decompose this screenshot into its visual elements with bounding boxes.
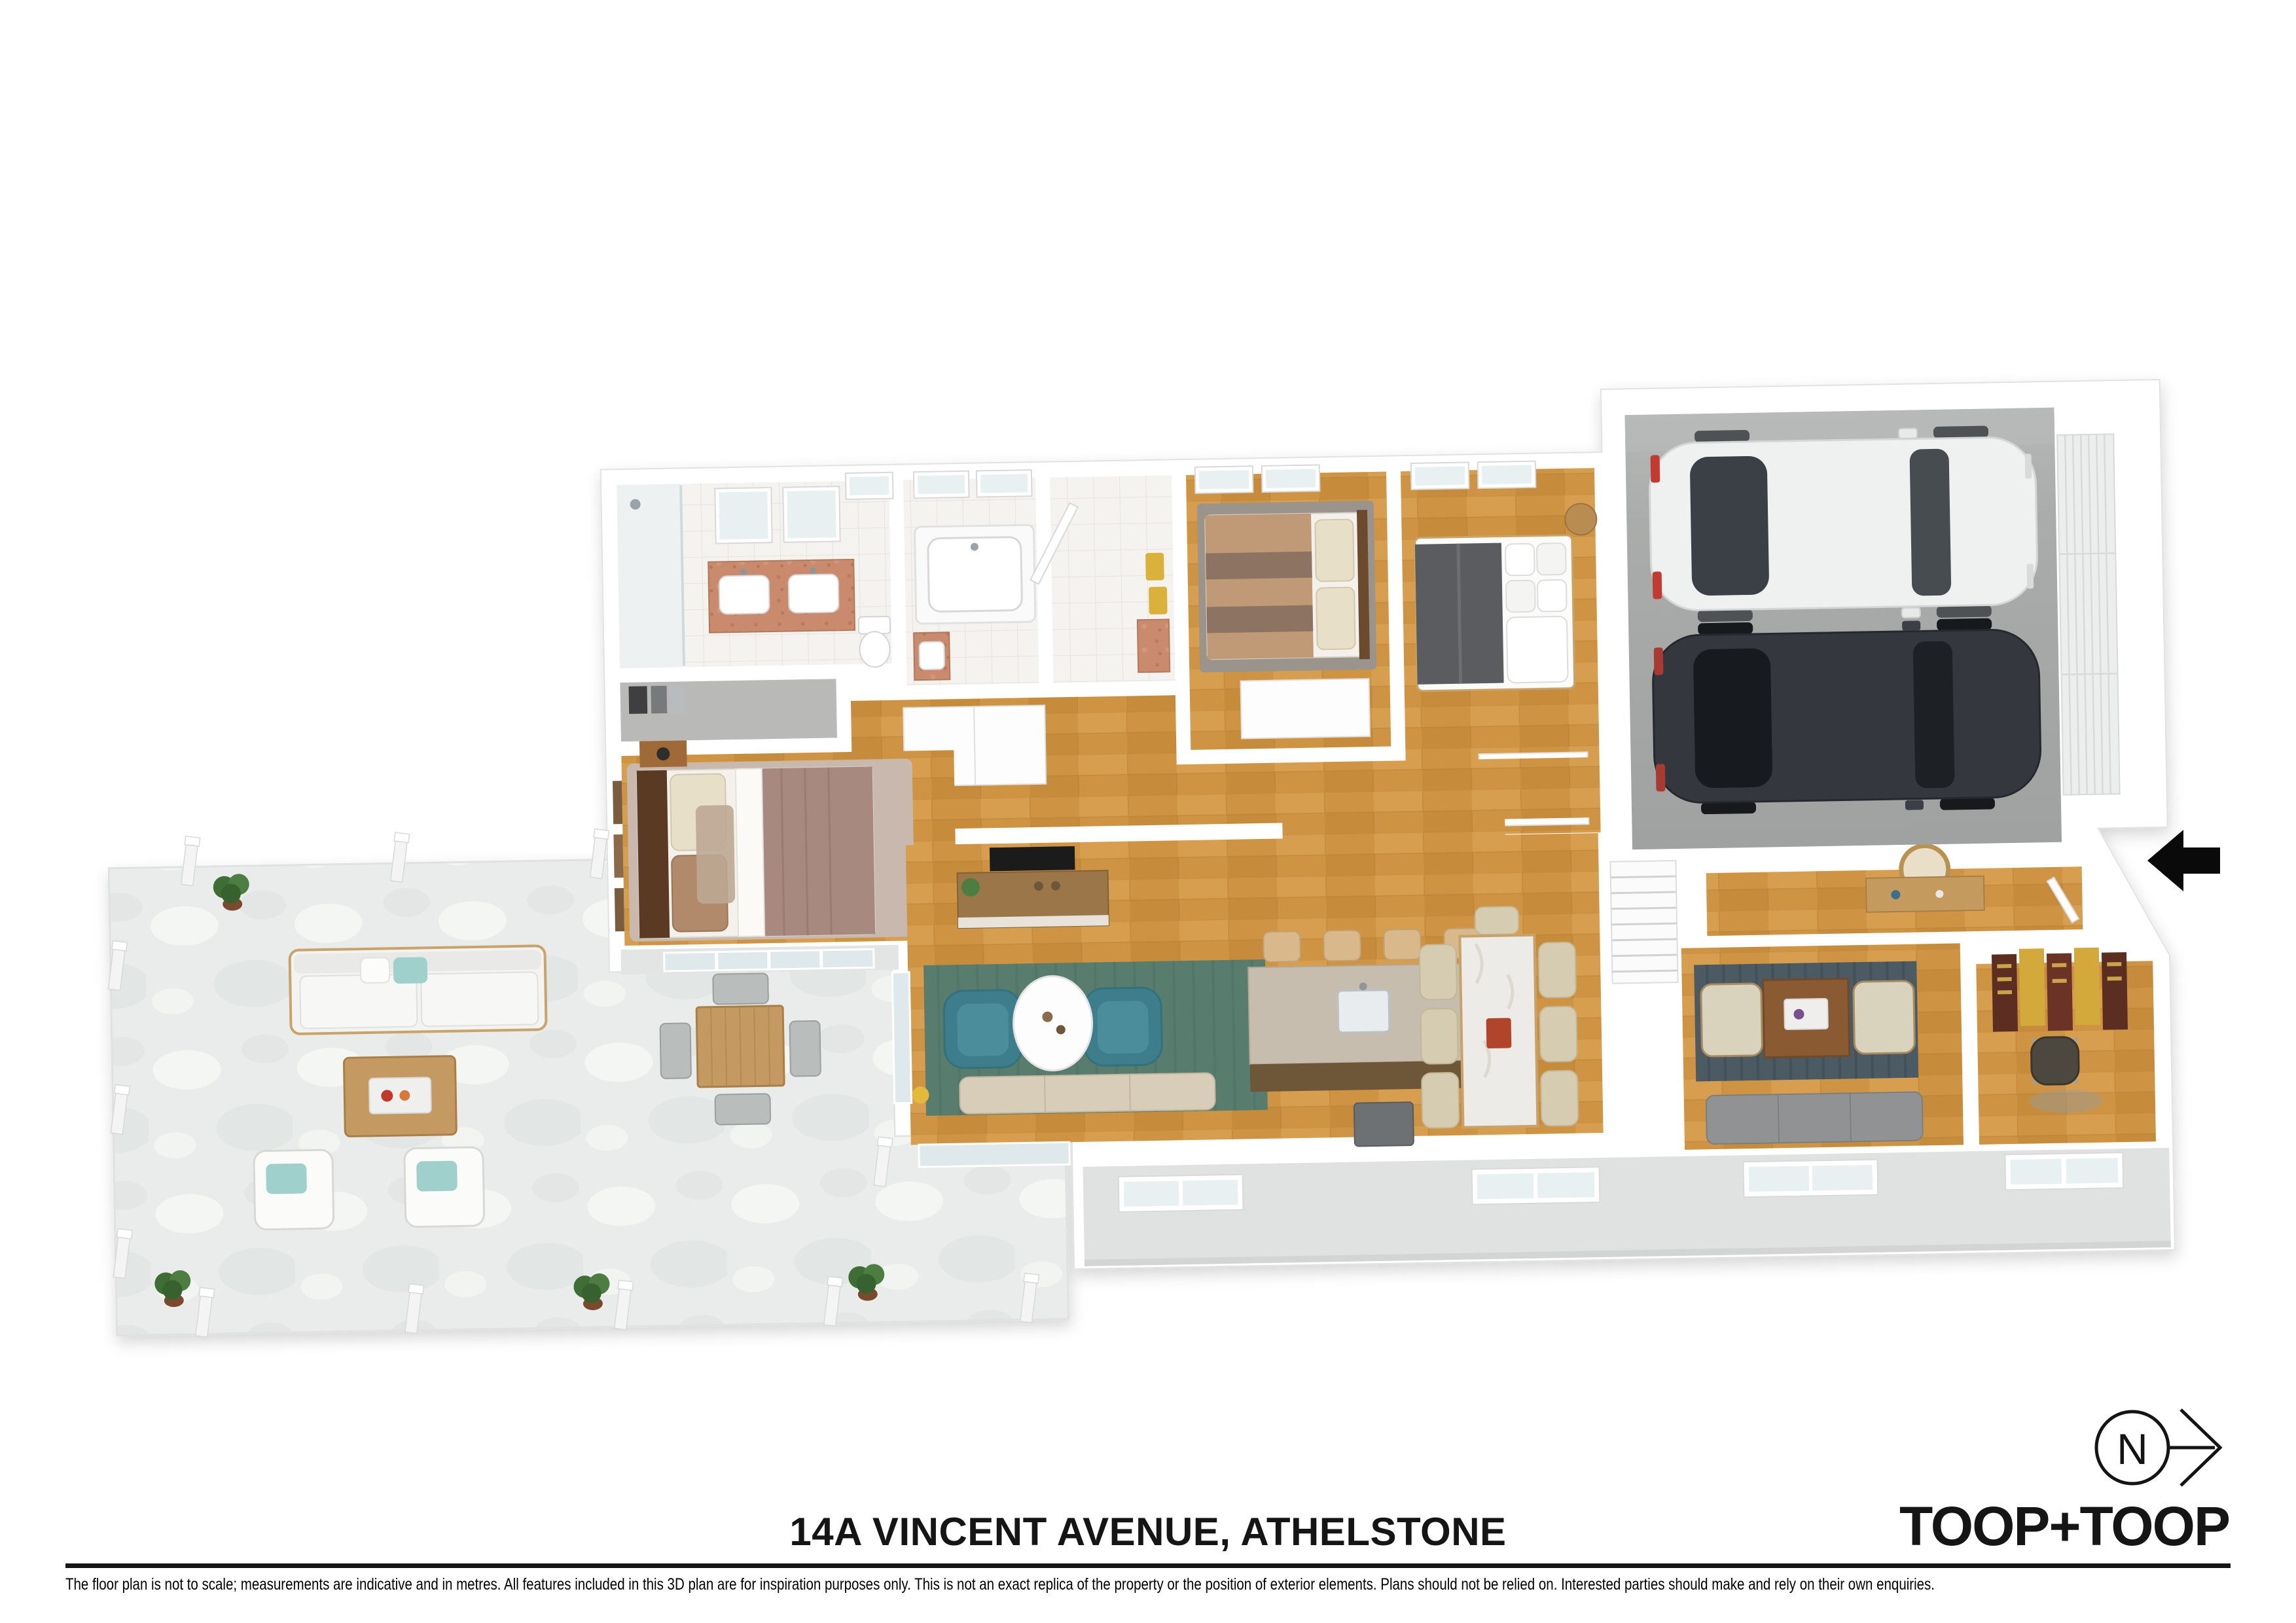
sofa bbox=[960, 1073, 1215, 1114]
towel bbox=[1149, 586, 1168, 614]
front-window bbox=[2005, 1152, 2123, 1190]
armchair bbox=[1854, 981, 1915, 1054]
car-white bbox=[1649, 425, 2038, 622]
bedroom-2 bbox=[1186, 464, 1391, 750]
sofa bbox=[1706, 1092, 1923, 1144]
bookshelves bbox=[1992, 947, 2128, 1032]
bed-2 bbox=[1205, 510, 1370, 662]
study bbox=[1976, 946, 2156, 1145]
dining-chair bbox=[1541, 1071, 1578, 1126]
ensuite-toilet bbox=[859, 616, 891, 668]
front-window bbox=[1119, 1175, 1244, 1212]
bar-stool bbox=[1323, 930, 1361, 961]
entry-arrow-icon bbox=[2147, 830, 2220, 891]
centerpiece bbox=[1486, 1018, 1512, 1048]
robe bbox=[1241, 679, 1371, 738]
window bbox=[846, 473, 893, 499]
patio-slider bbox=[919, 1142, 1070, 1167]
bar-stool bbox=[1263, 931, 1300, 962]
compass-north-label: N bbox=[2117, 1425, 2148, 1473]
tv-icon bbox=[990, 846, 1075, 871]
master-bedroom bbox=[612, 736, 957, 946]
open-plan-living bbox=[890, 833, 1604, 1168]
bed-3 bbox=[1415, 535, 1575, 691]
bathroom-vanity bbox=[914, 632, 950, 680]
dining-chair bbox=[1422, 1073, 1459, 1128]
bathroom bbox=[903, 470, 1039, 685]
stairs bbox=[1610, 861, 1677, 984]
console-table bbox=[1866, 876, 1984, 912]
dining-chair bbox=[1539, 942, 1576, 998]
dining-chair bbox=[1539, 1007, 1577, 1062]
north-compass-icon bbox=[2096, 1410, 2220, 1486]
plan bbox=[97, 380, 2176, 1339]
floor-plan-render: N bbox=[0, 0, 2296, 1623]
dining-chair bbox=[1420, 1008, 1458, 1064]
dining-chair bbox=[1420, 944, 1457, 1000]
dining-chair bbox=[1475, 906, 1519, 935]
hanging-clothes bbox=[629, 686, 648, 713]
hanging-clothes bbox=[651, 686, 667, 713]
wc-vanity bbox=[1138, 619, 1170, 672]
footer-divider bbox=[65, 1563, 2231, 1568]
master-south-wall bbox=[621, 945, 899, 974]
outdoor-sofa bbox=[289, 946, 546, 1034]
towel bbox=[1145, 553, 1164, 580]
lounge bbox=[1681, 943, 1964, 1149]
garage-door bbox=[2057, 434, 2120, 794]
outdoor-coffee-table bbox=[344, 1056, 456, 1137]
garage bbox=[1625, 406, 2121, 849]
disclaimer-text: The floor plan is not to scale; measurem… bbox=[65, 1575, 1935, 1594]
walk-in-robe bbox=[620, 679, 837, 741]
bathtub bbox=[914, 525, 1035, 624]
armchair bbox=[1701, 984, 1763, 1057]
bedside-table bbox=[1565, 503, 1597, 535]
front-window bbox=[1743, 1160, 1878, 1198]
bar-stool bbox=[1384, 929, 1421, 960]
sink-icon bbox=[1338, 990, 1390, 1033]
patio-slider bbox=[892, 972, 911, 1103]
hanging-clothes bbox=[670, 685, 685, 713]
coffee-table bbox=[1013, 976, 1092, 1071]
front-wall bbox=[1083, 1148, 2170, 1266]
floor-plan-page: N 14A VINCENT AVENUE, ATHELSTONE TOOP+TO… bbox=[0, 0, 2296, 1623]
appliance bbox=[1354, 1102, 1414, 1147]
car-dark bbox=[1652, 617, 2041, 815]
agency-logo: TOOP+TOOP bbox=[1899, 1495, 2229, 1558]
sitting-area bbox=[910, 959, 1268, 1116]
master-bed bbox=[637, 766, 875, 938]
front-window bbox=[1472, 1167, 1600, 1204]
ensuite bbox=[617, 473, 896, 671]
